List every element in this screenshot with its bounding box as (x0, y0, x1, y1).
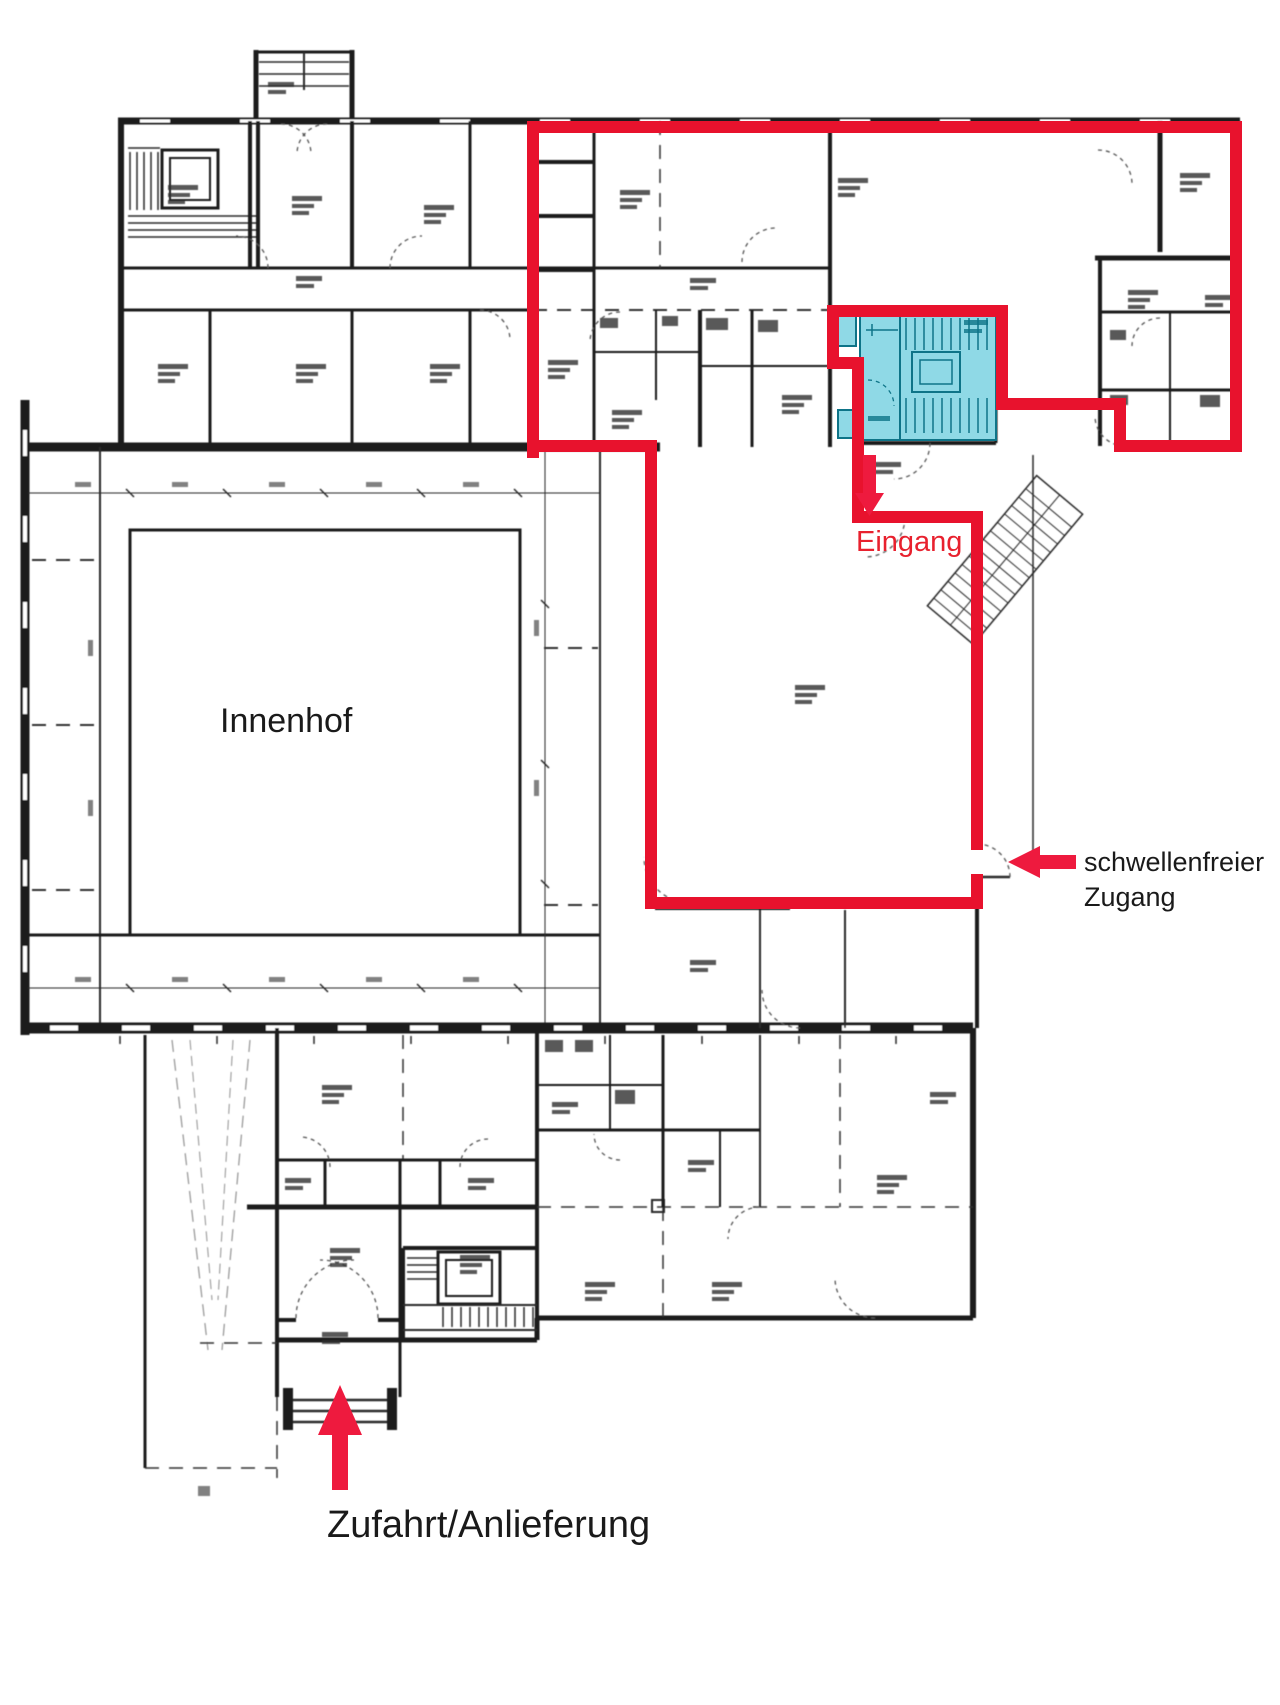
floor-plan-page: Eingang schwellenfreier Zugang Innenhof … (0, 0, 1280, 1705)
threshold-access-annotation: schwellenfreier Zugang (1008, 846, 1264, 912)
driveway (145, 1040, 277, 1496)
arrow-left-icon (1008, 846, 1076, 878)
entrance-label: Eingang (856, 526, 962, 558)
northwest-stairwell (128, 121, 258, 268)
threshold-access-label-line2: Zugang (1084, 882, 1176, 912)
balcony (256, 50, 352, 154)
floor-plan-canvas: Eingang schwellenfreier Zugang Innenhof … (0, 0, 1280, 1705)
building-plan-lines (22, 50, 1240, 1496)
threshold-access-label-line1: schwellenfreier (1084, 847, 1264, 877)
courtyard-label: Innenhof (220, 702, 353, 740)
delivery-annotation: Zufahrt/Anlieferung (318, 1385, 650, 1546)
lease-boundary-vestibule (858, 517, 977, 844)
entrance-annotation: Eingang (855, 455, 962, 558)
delivery-label: Zufahrt/Anlieferung (327, 1504, 650, 1546)
south-stairwell (403, 1248, 537, 1340)
lease-boundary (533, 127, 1236, 903)
